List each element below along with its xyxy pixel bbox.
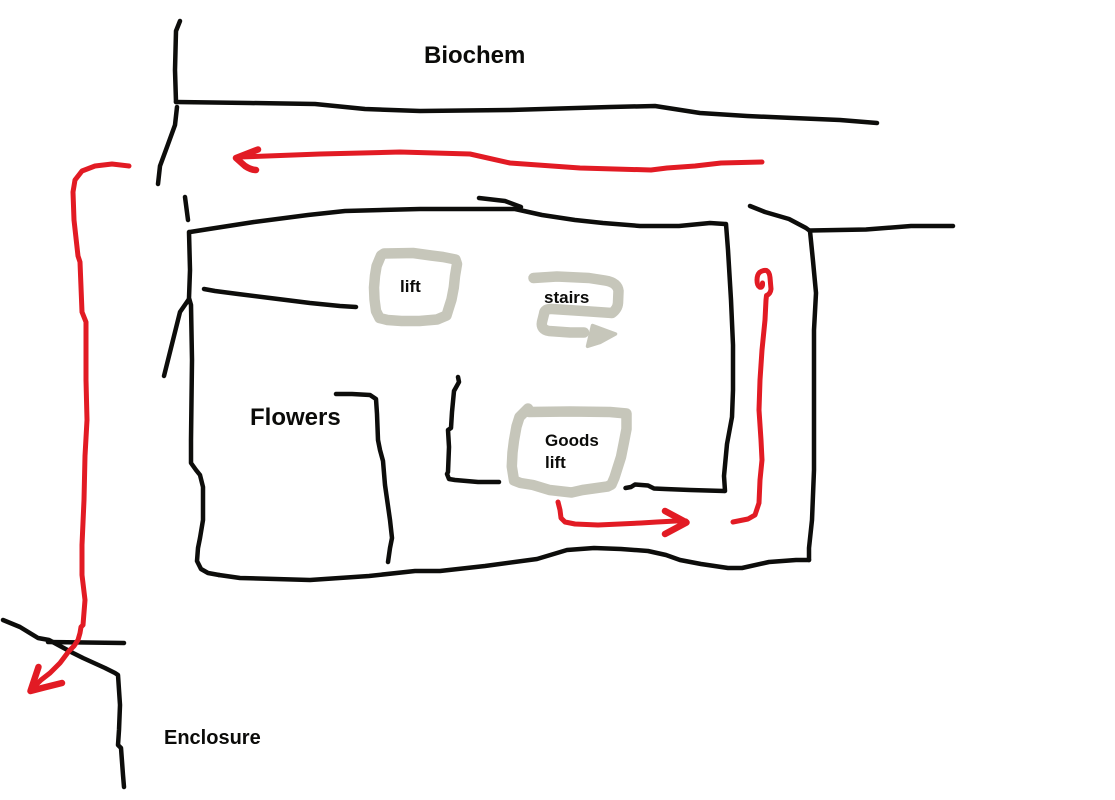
svg-text:Goods: Goods xyxy=(545,431,599,450)
svg-text:Biochem: Biochem xyxy=(424,42,525,69)
svg-text:Flowers: Flowers xyxy=(250,404,341,431)
svg-text:lift: lift xyxy=(545,453,566,472)
svg-text:stairs: stairs xyxy=(544,288,589,307)
svg-text:Enclosure: Enclosure xyxy=(164,727,261,749)
svg-text:lift: lift xyxy=(400,277,421,296)
